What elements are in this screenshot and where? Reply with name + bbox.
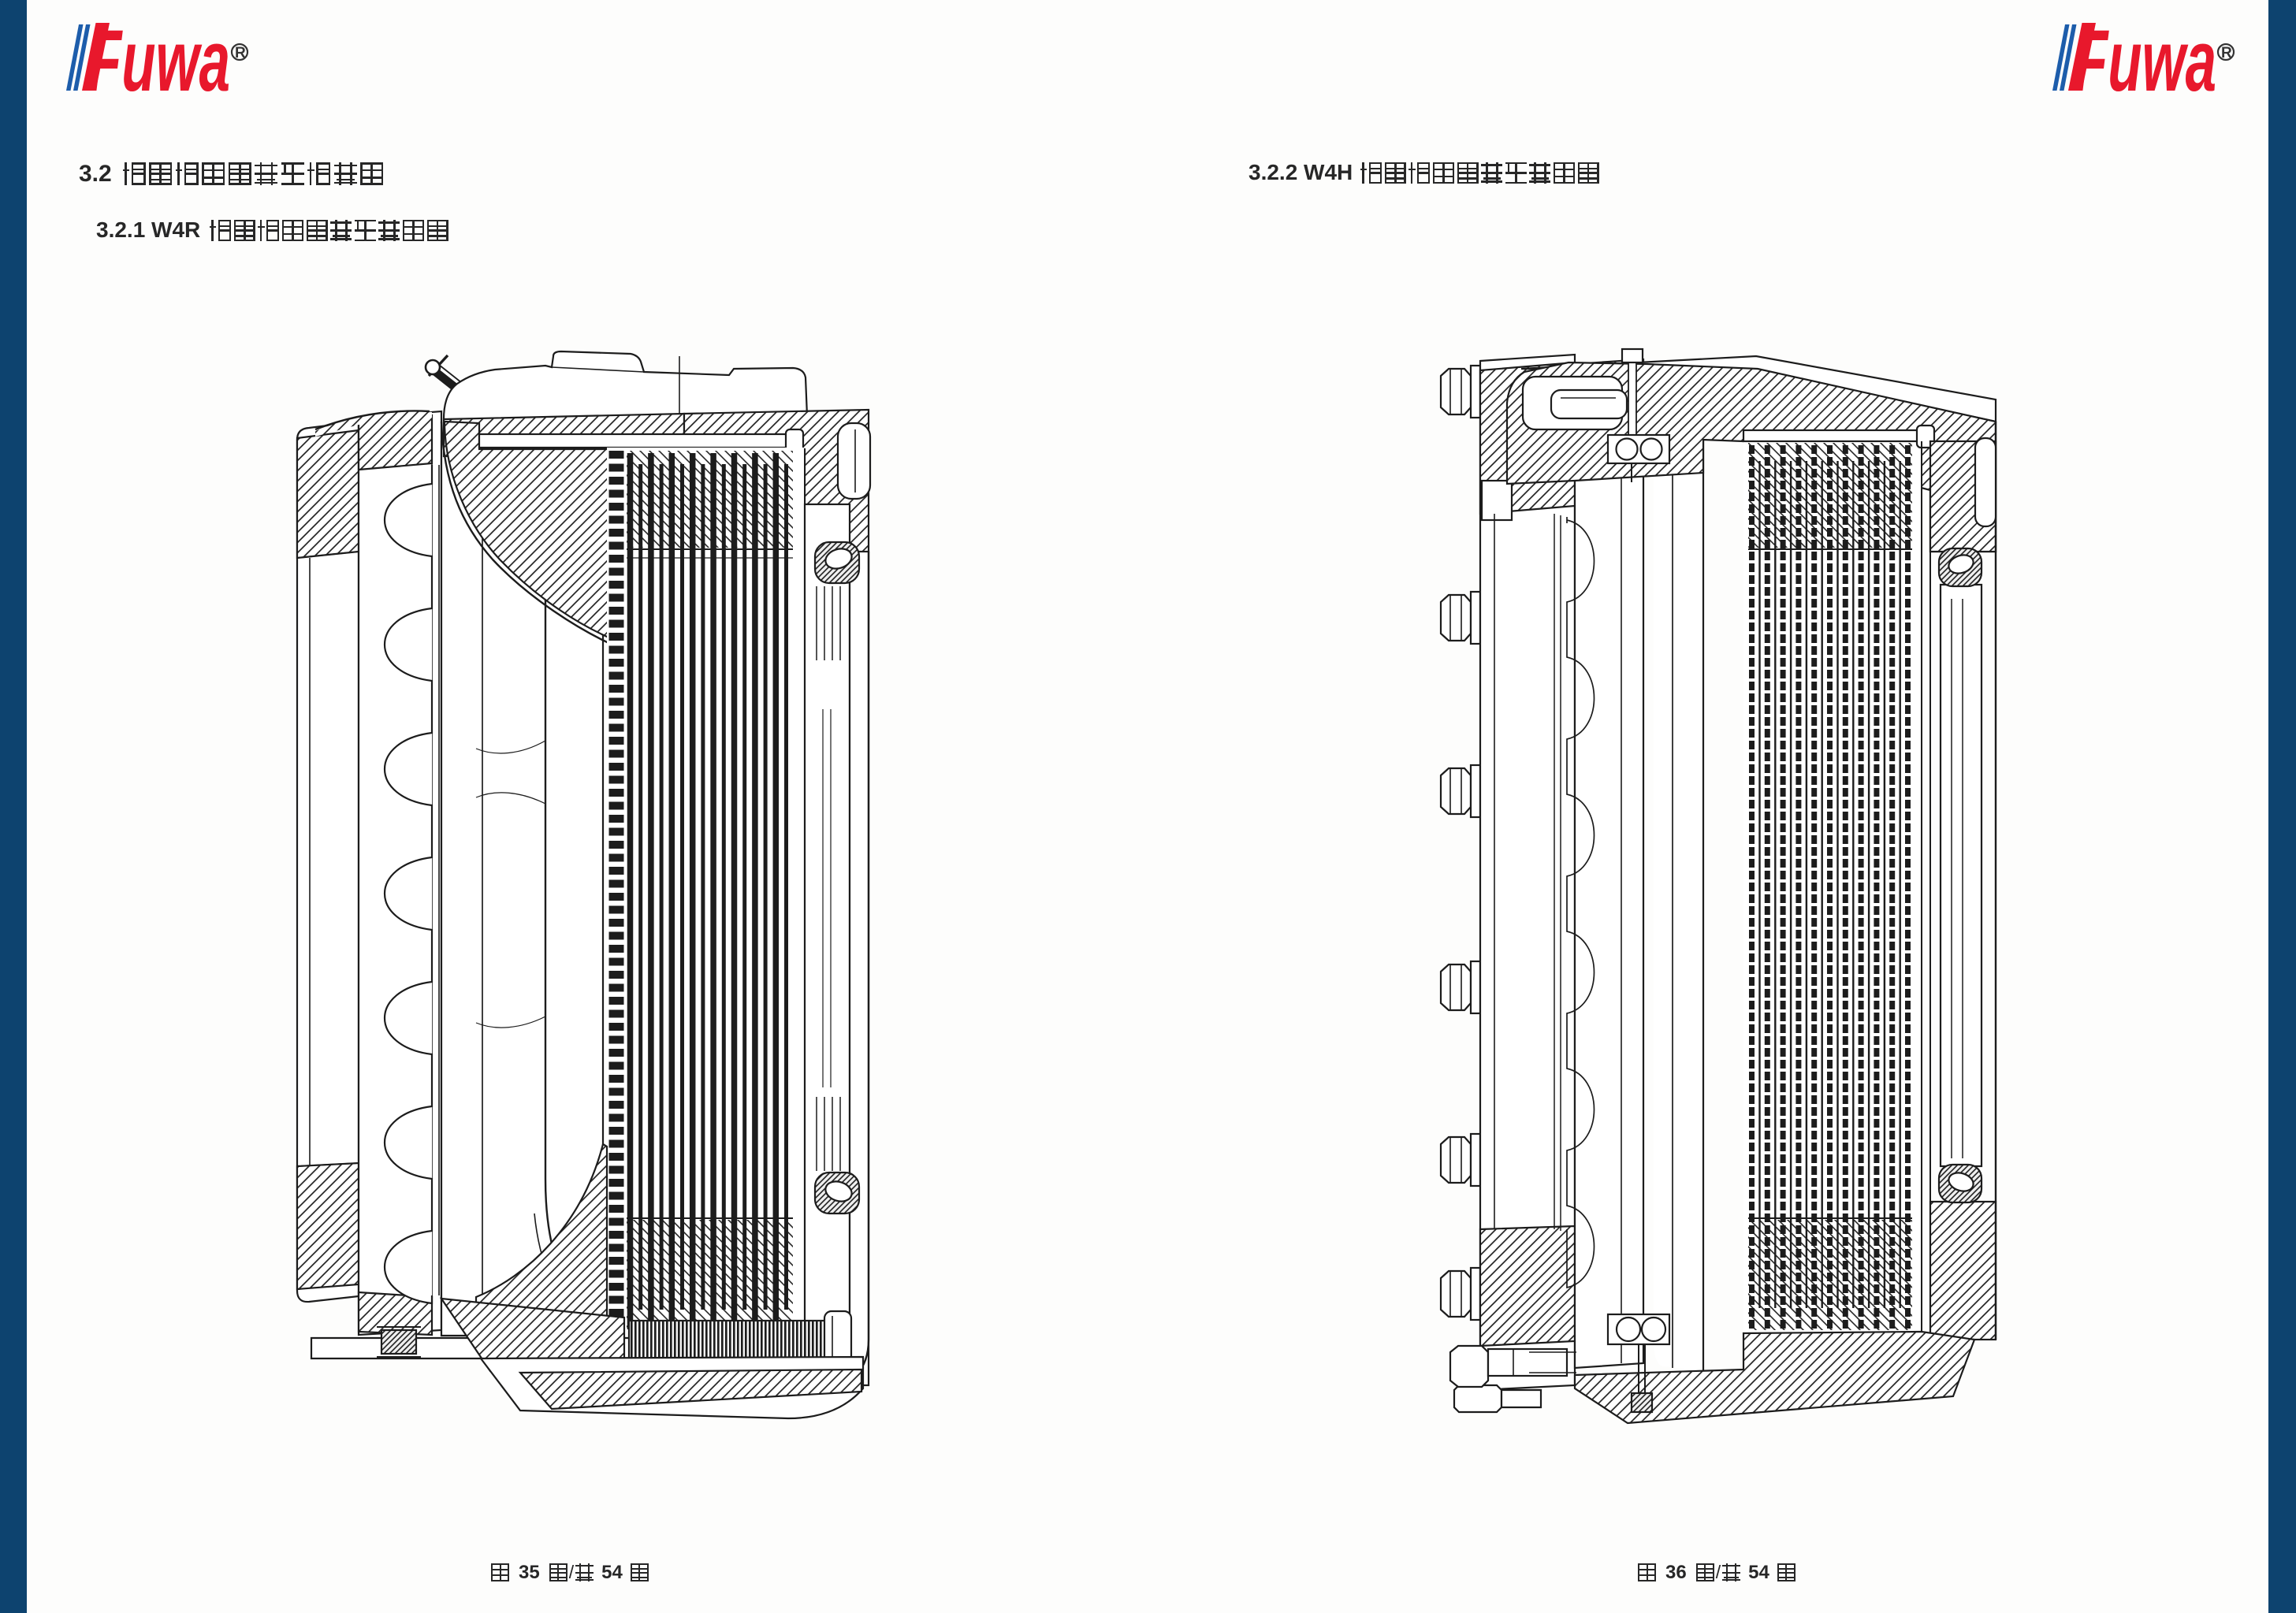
svg-text:Fuwa: Fuwa bbox=[87, 20, 230, 99]
svg-text:Fuwa: Fuwa bbox=[2074, 20, 2216, 99]
svg-text:R: R bbox=[235, 45, 246, 61]
svg-text:R: R bbox=[2221, 45, 2232, 61]
